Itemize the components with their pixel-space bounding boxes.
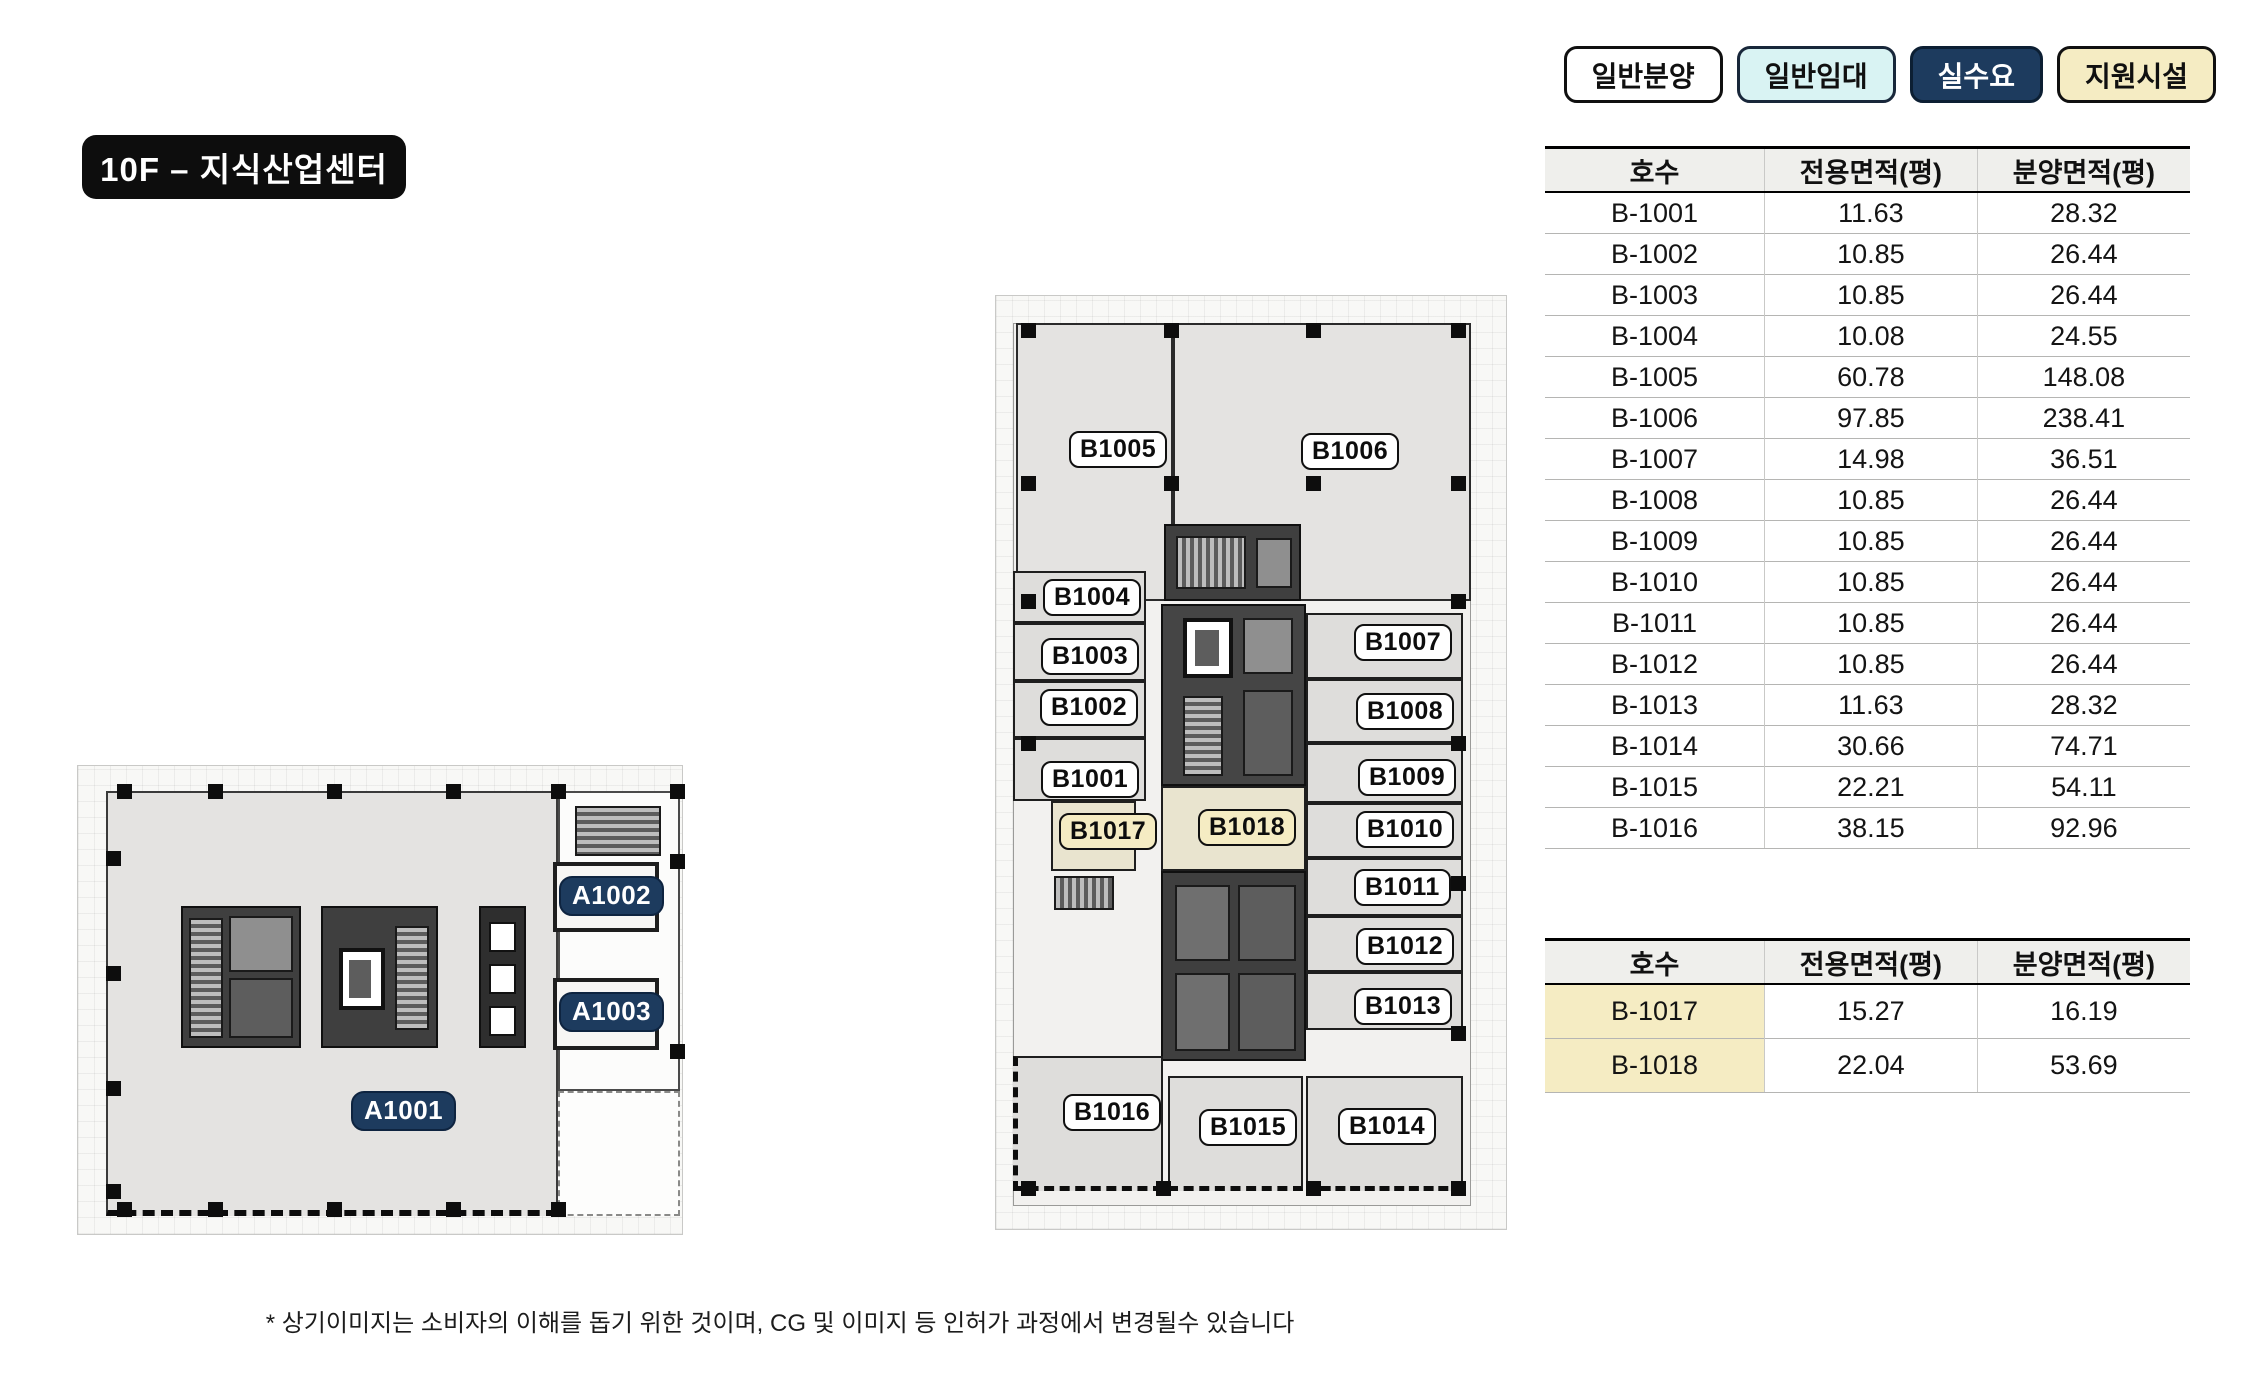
floor-plan-building-a: A1001 A1002 A1003 — [77, 765, 683, 1235]
column-marker — [117, 784, 132, 799]
table-row: B-100410.0824.55 — [1545, 316, 2190, 357]
column-marker — [446, 784, 461, 799]
building-a-terrace — [558, 1091, 680, 1216]
column-marker — [1451, 476, 1466, 491]
area-cell: 38.15 — [1765, 808, 1978, 849]
stair-block — [575, 806, 661, 856]
core-elevator-lobby — [321, 906, 438, 1048]
area-cell: 60.78 — [1765, 357, 1978, 398]
column-marker — [1164, 476, 1179, 491]
column-marker — [1451, 876, 1466, 891]
table-row: B-100810.8526.44 — [1545, 480, 2190, 521]
column-header: 전용면적(평) — [1765, 940, 1978, 985]
table-row: B-100310.8526.44 — [1545, 275, 2190, 316]
column-marker — [1021, 594, 1036, 609]
unit-no-cell: B-1015 — [1545, 767, 1765, 808]
unit-label-b1015: B1015 — [1199, 1109, 1297, 1146]
unit-no-cell: B-1006 — [1545, 398, 1765, 439]
area-cell: 26.44 — [1977, 644, 2190, 685]
area-cell: 28.32 — [1977, 192, 2190, 234]
core-elevator-bank — [479, 906, 526, 1048]
unit-no-cell: B-1005 — [1545, 357, 1765, 398]
unit-label-b1018: B1018 — [1198, 809, 1296, 846]
unit-no-cell: B-1008 — [1545, 480, 1765, 521]
area-cell: 10.85 — [1765, 521, 1978, 562]
table-row: B-100560.78148.08 — [1545, 357, 2190, 398]
area-cell: 148.08 — [1977, 357, 2190, 398]
area-cell: 16.19 — [1977, 984, 2190, 1039]
column-marker — [1451, 1026, 1466, 1041]
area-cell: 24.55 — [1977, 316, 2190, 357]
unit-label-b1017: B1017 — [1059, 813, 1157, 850]
table-row: B-100210.8526.44 — [1545, 234, 2190, 275]
column-marker — [551, 1202, 566, 1217]
unit-no-cell: B-1001 — [1545, 192, 1765, 234]
area-cell: 10.08 — [1765, 316, 1978, 357]
unit-label-b1003: B1003 — [1041, 638, 1139, 675]
column-marker — [1451, 594, 1466, 609]
unit-label-b1001: B1001 — [1041, 761, 1139, 798]
column-marker — [208, 784, 223, 799]
unit-label-b1012: B1012 — [1356, 928, 1454, 965]
area-cell: 22.21 — [1765, 767, 1978, 808]
page-title: 10F – 지식산업센터 — [82, 135, 406, 199]
column-marker — [1306, 476, 1321, 491]
area-cell: 26.44 — [1977, 603, 2190, 644]
column-marker — [1306, 1181, 1321, 1196]
unit-label-a1003: A1003 — [559, 992, 664, 1032]
column-marker — [1451, 736, 1466, 751]
legend: 일반분양 일반임대 실수요 지원시설 — [1564, 46, 2216, 103]
core-lower-toilets — [1161, 871, 1306, 1061]
area-cell: 26.44 — [1977, 234, 2190, 275]
legend-general-sale[interactable]: 일반분양 — [1564, 46, 1723, 103]
support-facility-table: 호수전용면적(평)분양면적(평)B-101715.2716.19B-101822… — [1545, 938, 2190, 1093]
table-row: B-100697.85238.41 — [1545, 398, 2190, 439]
unit-label-b1010: B1010 — [1356, 811, 1454, 848]
area-cell: 238.41 — [1977, 398, 2190, 439]
area-cell: 15.27 — [1765, 984, 1978, 1039]
column-header: 분양면적(평) — [1977, 148, 2190, 193]
column-header: 분양면적(평) — [1977, 940, 2190, 985]
unit-label-a1002: A1002 — [559, 876, 664, 916]
area-cell: 54.11 — [1977, 767, 2190, 808]
area-cell: 53.69 — [1977, 1039, 2190, 1093]
column-marker — [106, 1184, 121, 1199]
table-row: B-101522.2154.11 — [1545, 767, 2190, 808]
table-row: B-101010.8526.44 — [1545, 562, 2190, 603]
unit-no-cell: B-1014 — [1545, 726, 1765, 767]
unit-no-cell: B-1007 — [1545, 439, 1765, 480]
unit-no-cell: B-1002 — [1545, 234, 1765, 275]
core-stairs-toilets — [181, 906, 301, 1048]
column-marker — [670, 784, 685, 799]
table-row: B-101110.8526.44 — [1545, 603, 2190, 644]
unit-label-b1014: B1014 — [1338, 1108, 1436, 1145]
column-marker — [327, 784, 342, 799]
unit-label-b1008: B1008 — [1356, 693, 1454, 730]
unit-no-cell: B-1004 — [1545, 316, 1765, 357]
column-marker — [106, 1081, 121, 1096]
area-cell: 11.63 — [1765, 685, 1978, 726]
area-cell: 10.85 — [1765, 480, 1978, 521]
area-cell: 22.04 — [1765, 1039, 1978, 1093]
column-marker — [106, 966, 121, 981]
area-cell: 10.85 — [1765, 234, 1978, 275]
disclaimer-text: * 상기이미지는 소비자의 이해를 돕기 위한 것이며, CG 및 이미지 등 … — [240, 1303, 1320, 1338]
area-cell: 10.85 — [1765, 644, 1978, 685]
unit-no-cell: B-1010 — [1545, 562, 1765, 603]
area-cell: 26.44 — [1977, 521, 2190, 562]
unit-no-cell: B-1009 — [1545, 521, 1765, 562]
unit-no-cell: B-1012 — [1545, 644, 1765, 685]
unit-no-cell: B-1018 — [1545, 1039, 1765, 1093]
column-marker — [1451, 1181, 1466, 1196]
legend-owner-use[interactable]: 실수요 — [1910, 46, 2043, 103]
unit-area-table: 호수전용면적(평)분양면적(평)B-100111.6328.32B-100210… — [1545, 146, 2190, 849]
area-cell: 74.71 — [1977, 726, 2190, 767]
unit-label-b1002: B1002 — [1040, 689, 1138, 726]
table-row: B-100111.6328.32 — [1545, 192, 2190, 234]
column-marker — [117, 1202, 132, 1217]
table-row: B-100714.9836.51 — [1545, 439, 2190, 480]
column-header: 전용면적(평) — [1765, 148, 1978, 193]
core-top-stairs — [1164, 524, 1301, 601]
area-cell: 11.63 — [1765, 192, 1978, 234]
unit-no-cell: B-1016 — [1545, 808, 1765, 849]
table-row: B-101638.1592.96 — [1545, 808, 2190, 849]
unit-label-b1006: B1006 — [1301, 433, 1399, 470]
column-marker — [1021, 736, 1036, 751]
unit-label-b1004: B1004 — [1043, 579, 1141, 616]
table-row: B-101210.8526.44 — [1545, 644, 2190, 685]
unit-label-b1007: B1007 — [1354, 624, 1452, 661]
core-upper-elevators — [1161, 604, 1306, 786]
area-cell: 97.85 — [1765, 398, 1978, 439]
area-cell: 10.85 — [1765, 275, 1978, 316]
stair-block — [1054, 876, 1114, 910]
column-header: 호수 — [1545, 148, 1765, 193]
area-cell: 26.44 — [1977, 562, 2190, 603]
legend-general-lease[interactable]: 일반임대 — [1737, 46, 1896, 103]
area-cell: 14.98 — [1765, 439, 1978, 480]
floor-plan-building-b: B1005 B1006 B1004 B1003 B1002 B1001 B101… — [995, 295, 1507, 1230]
unit-no-cell: B-1003 — [1545, 275, 1765, 316]
column-marker — [446, 1202, 461, 1217]
unit-label-b1009: B1009 — [1358, 759, 1456, 796]
column-marker — [1451, 323, 1466, 338]
area-cell: 28.32 — [1977, 685, 2190, 726]
area-cell: 26.44 — [1977, 480, 2190, 521]
unit-label-b1016: B1016 — [1063, 1094, 1161, 1131]
unit-label-b1005: B1005 — [1069, 431, 1167, 468]
legend-support-facility[interactable]: 지원시설 — [2057, 46, 2216, 103]
area-cell: 26.44 — [1977, 275, 2190, 316]
area-cell: 10.85 — [1765, 562, 1978, 603]
column-header: 호수 — [1545, 940, 1765, 985]
column-marker — [1021, 476, 1036, 491]
unit-no-cell: B-1017 — [1545, 984, 1765, 1039]
column-marker — [1021, 323, 1036, 338]
area-cell: 10.85 — [1765, 603, 1978, 644]
column-marker — [670, 1044, 685, 1059]
table-row: B-100910.8526.44 — [1545, 521, 2190, 562]
column-marker — [106, 851, 121, 866]
unit-no-cell: B-1011 — [1545, 603, 1765, 644]
unit-no-cell: B-1013 — [1545, 685, 1765, 726]
unit-label-a1001: A1001 — [351, 1091, 456, 1131]
column-marker — [1306, 323, 1321, 338]
column-marker — [1021, 1181, 1036, 1196]
unit-label-b1013: B1013 — [1354, 988, 1452, 1025]
column-marker — [327, 1202, 342, 1217]
area-cell: 30.66 — [1765, 726, 1978, 767]
table-row: B-101715.2716.19 — [1545, 984, 2190, 1039]
column-marker — [1164, 323, 1179, 338]
area-cell: 92.96 — [1977, 808, 2190, 849]
area-cell: 36.51 — [1977, 439, 2190, 480]
unit-label-b1011: B1011 — [1354, 869, 1451, 906]
floorplan-brochure-page: 10F – 지식산업센터 일반분양 일반임대 실수요 지원시설 — [0, 0, 2260, 1381]
column-marker — [551, 784, 566, 799]
table-row: B-101430.6674.71 — [1545, 726, 2190, 767]
table-row: B-101822.0453.69 — [1545, 1039, 2190, 1093]
column-marker — [1156, 1181, 1171, 1196]
column-marker — [208, 1202, 223, 1217]
table-row: B-101311.6328.32 — [1545, 685, 2190, 726]
column-marker — [670, 854, 685, 869]
